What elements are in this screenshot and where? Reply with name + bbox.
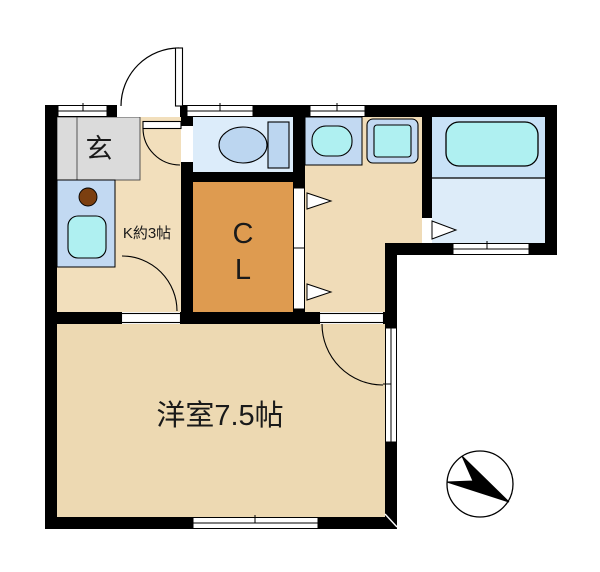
- wall-right-bath: [545, 105, 557, 255]
- bath-floor-zone: [432, 178, 545, 243]
- main-room-label: 洋室7.5帖: [156, 399, 283, 432]
- main-room-door-leaf: [320, 314, 384, 323]
- window-toilet: [187, 103, 253, 117]
- kitchen-door-leaf: [122, 314, 181, 323]
- wall-left: [45, 105, 57, 529]
- stove-burner-icon: [79, 188, 97, 206]
- kitchen-sink-icon: [68, 216, 106, 258]
- toilet-bowl-icon: [219, 127, 267, 163]
- kitchen-label: K約3帖: [123, 225, 171, 242]
- compass: [447, 451, 513, 517]
- closet-label-c: C: [233, 218, 254, 250]
- wall-toilet-bottom: [181, 172, 305, 182]
- floorplan-svg: 玄 K約3帖 C L 洋室7.5帖: [0, 0, 600, 572]
- corridor-floor: [305, 243, 385, 312]
- entrance-door: [121, 48, 183, 106]
- entrance-door-leaf: [176, 48, 183, 106]
- bath-door-opening: [422, 218, 432, 243]
- toilet-door-opening: [181, 126, 193, 162]
- window-main-room-south: [193, 515, 318, 529]
- washing-machine-drum: [374, 125, 411, 157]
- toilet-tank-icon: [268, 122, 289, 168]
- genkan-label: 玄: [86, 134, 113, 164]
- window-bath: [453, 241, 529, 255]
- entrance-opening: [117, 105, 180, 117]
- bathtub-icon: [446, 122, 538, 166]
- closet-door-lower: [294, 248, 305, 309]
- window-washroom: [310, 103, 365, 117]
- window-main-room-east: [383, 328, 397, 442]
- floorplan-canvas: 玄 K約3帖 C L 洋室7.5帖: [0, 0, 600, 572]
- washbasin-bowl-icon: [312, 126, 352, 156]
- window-genkan: [58, 103, 107, 117]
- closet-label-l: L: [235, 254, 251, 286]
- closet-door-upper: [294, 188, 305, 248]
- toilet-door-leaf: [143, 122, 181, 129]
